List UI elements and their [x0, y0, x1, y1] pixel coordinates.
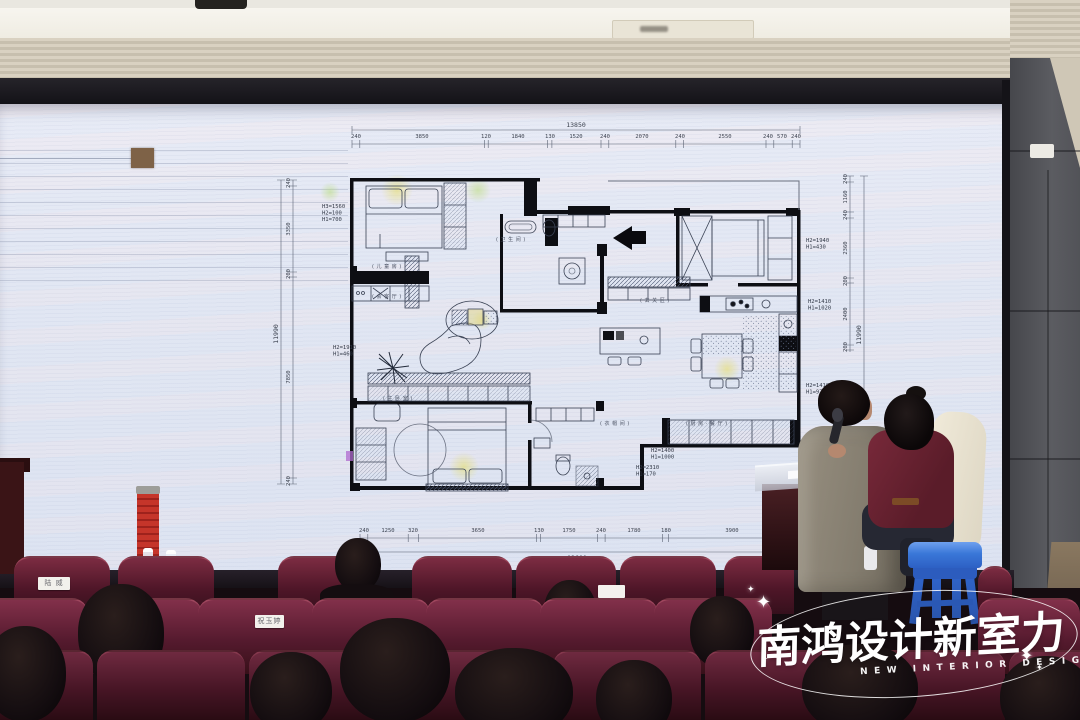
svg-text:3350: 3350	[286, 222, 292, 235]
svg-text:2550: 2550	[718, 134, 731, 140]
svg-text:( 衣 帽 间 ): ( 衣 帽 间 )	[600, 420, 630, 427]
svg-text:3850: 3850	[415, 134, 428, 140]
svg-text:200: 200	[843, 276, 849, 286]
svg-text:130: 130	[534, 528, 544, 534]
svg-text:H1=1020: H1=1020	[808, 306, 831, 312]
svg-text:H1=700: H1=700	[322, 217, 342, 223]
seat	[97, 650, 245, 720]
svg-text:1780: 1780	[627, 528, 640, 534]
wall-ceiling-edge	[1010, 0, 1080, 58]
svg-text:1840: 1840	[511, 134, 524, 140]
svg-text:H2=1910: H2=1910	[333, 345, 356, 351]
svg-text:240: 240	[596, 528, 606, 534]
svg-text:H1=460: H1=460	[333, 352, 353, 358]
seat-name-tag: 陆 威	[38, 577, 70, 590]
svg-text:( 儿 童 房 ): ( 儿 童 房 )	[372, 263, 402, 270]
svg-text:200: 200	[286, 269, 292, 279]
dim-right-segments: 240 1160 240 2360 200 2400 200	[843, 174, 849, 352]
svg-text:1160: 1160	[843, 190, 849, 203]
svg-text:H3=1560: H3=1560	[322, 204, 345, 210]
svg-text:7850: 7850	[286, 370, 292, 383]
svg-text:H2=1940: H2=1940	[806, 238, 829, 244]
wall-seam	[1010, 458, 1080, 460]
svg-text:H2=100: H2=100	[322, 211, 342, 217]
svg-text:120: 120	[481, 134, 491, 140]
audience-head	[250, 652, 332, 720]
stool-leg	[932, 578, 941, 618]
seat-name-tag	[598, 585, 625, 598]
screen-frame-top	[0, 78, 1014, 104]
svg-text:240: 240	[286, 476, 292, 486]
left-podium	[0, 462, 24, 574]
blue-stool	[908, 542, 982, 568]
svg-text:( 主 卧 室 ): ( 主 卧 室 )	[383, 395, 413, 402]
svg-text:1520: 1520	[569, 134, 582, 140]
svg-text:H1=430: H1=430	[806, 245, 826, 251]
svg-text:( 玄 关 区 ): ( 玄 关 区 )	[640, 297, 670, 304]
svg-text:( 会 客 厅 ): ( 会 客 厅 )	[372, 293, 402, 300]
audience-head	[802, 644, 918, 720]
dim-left-segments: 240 3350 200 7850 240	[286, 178, 292, 486]
svg-text:240: 240	[359, 528, 369, 534]
microphone-head	[832, 408, 843, 422]
svg-text:1750: 1750	[562, 528, 575, 534]
dim-bottom-segments: 240 1250 320 3650 130 1750 240 1780 180 …	[359, 528, 739, 534]
audience-head	[340, 618, 450, 720]
seat-name-tag: 祝玉婷	[255, 615, 284, 628]
svg-text:1250: 1250	[381, 528, 394, 534]
svg-text:H1=170: H1=170	[636, 472, 656, 478]
svg-text:H2=1410: H2=1410	[808, 299, 831, 305]
svg-text:240: 240	[763, 134, 773, 140]
dim-right-total: 11990	[855, 325, 863, 345]
svg-text:240: 240	[675, 134, 685, 140]
svg-text:H2=2310: H2=2310	[636, 465, 659, 471]
wall-seam	[1010, 310, 1080, 312]
presenter-woman-belt	[892, 498, 919, 505]
svg-text:240: 240	[351, 134, 361, 140]
entry-arrow	[613, 226, 646, 250]
svg-text:( 卫 生 间 ): ( 卫 生 间 )	[496, 236, 526, 243]
svg-text:3650: 3650	[471, 528, 484, 534]
balcony-outline	[608, 181, 799, 210]
svg-text:320: 320	[408, 528, 418, 534]
presenter-woman-hair	[884, 394, 934, 450]
svg-text:240: 240	[791, 134, 801, 140]
svg-text:240: 240	[843, 174, 849, 184]
dim-top-total: 13850	[566, 121, 586, 129]
svg-text:( 厨 房 · 餐 厅 ): ( 厨 房 · 餐 厅 )	[686, 420, 728, 427]
svg-text:240: 240	[286, 178, 292, 188]
svg-text:200: 200	[843, 342, 849, 352]
svg-text:H1=1000: H1=1000	[651, 455, 674, 461]
svg-text:H2=1400: H2=1400	[651, 448, 674, 454]
svg-text:2360: 2360	[843, 241, 849, 254]
svg-text:2070: 2070	[635, 134, 648, 140]
svg-text:240: 240	[843, 210, 849, 220]
svg-text:3900: 3900	[725, 528, 738, 534]
red-banner-cap	[136, 486, 160, 494]
magenta-artifact	[346, 451, 353, 461]
svg-text:130: 130	[545, 134, 555, 140]
stool-leg	[952, 578, 961, 618]
dim-left-total: 11990	[272, 324, 280, 344]
svg-text:240: 240	[600, 134, 610, 140]
presenter-man-hand	[828, 444, 846, 458]
svg-text:570: 570	[777, 134, 787, 140]
dim-top-segments: 240 3850 120 1840 130 1520 240 2070 240 …	[351, 134, 801, 140]
presenter-man-hair	[818, 380, 870, 426]
svg-text:180: 180	[661, 528, 671, 534]
wall-switch	[1030, 144, 1054, 158]
auditorium-scene: 13850 240 3850 120 1840 130 1520 240 207…	[0, 0, 1080, 720]
svg-text:2400: 2400	[843, 307, 849, 320]
